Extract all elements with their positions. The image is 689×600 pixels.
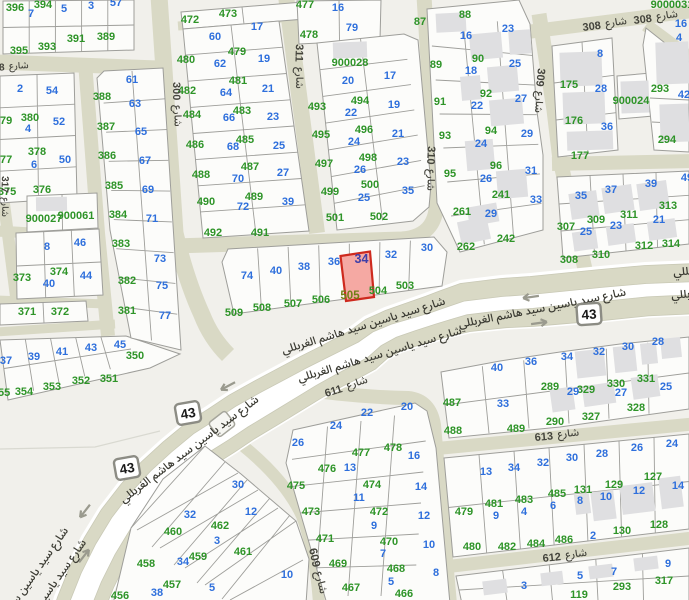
svg-text:25: 25 (580, 226, 592, 238)
svg-text:68: 68 (227, 141, 239, 153)
svg-text:40: 40 (43, 278, 55, 290)
svg-text:393: 393 (38, 41, 56, 53)
svg-text:21: 21 (653, 214, 665, 226)
svg-text:32: 32 (385, 249, 397, 261)
svg-text:45: 45 (114, 339, 126, 351)
svg-text:309: 309 (587, 214, 605, 226)
svg-text:309: 309 (533, 68, 547, 88)
svg-text:30: 30 (566, 452, 578, 464)
svg-text:54: 54 (46, 85, 59, 97)
svg-text:311: 311 (292, 44, 305, 62)
svg-text:4: 4 (521, 506, 528, 518)
svg-text:612: 612 (542, 551, 562, 565)
svg-text:128: 128 (650, 519, 668, 531)
svg-text:613: 613 (534, 430, 553, 444)
svg-text:65: 65 (135, 126, 147, 138)
svg-text:310: 310 (424, 146, 437, 165)
svg-text:473: 473 (219, 8, 237, 20)
svg-text:26: 26 (354, 164, 366, 176)
svg-text:900024: 900024 (613, 95, 651, 107)
svg-text:387: 387 (97, 121, 115, 133)
svg-text:352: 352 (72, 375, 90, 387)
svg-text:5: 5 (61, 3, 67, 15)
svg-text:261: 261 (453, 206, 471, 218)
svg-text:308: 308 (560, 254, 578, 266)
svg-text:294: 294 (658, 134, 677, 146)
svg-text:499: 499 (321, 186, 339, 198)
svg-text:72: 72 (237, 201, 249, 213)
svg-text:497: 497 (315, 158, 333, 170)
svg-text:21: 21 (392, 128, 404, 140)
svg-text:23: 23 (397, 156, 409, 168)
svg-text:23: 23 (502, 23, 514, 35)
svg-text:502: 502 (370, 211, 388, 223)
svg-text:505: 505 (340, 290, 360, 302)
svg-text:485: 485 (548, 488, 566, 500)
svg-text:29: 29 (567, 386, 579, 398)
svg-text:378: 378 (28, 146, 46, 158)
svg-text:382: 382 (118, 275, 136, 287)
svg-text:480: 480 (177, 54, 195, 66)
svg-text:28: 28 (596, 448, 608, 460)
svg-text:308: 308 (582, 20, 602, 34)
svg-text:491: 491 (251, 227, 269, 239)
svg-text:462: 462 (211, 520, 229, 532)
svg-text:9000031: 9000031 (651, 0, 689, 11)
svg-text:44: 44 (80, 270, 93, 282)
svg-text:317: 317 (0, 176, 10, 193)
svg-text:386: 386 (98, 150, 116, 162)
svg-text:177: 177 (571, 150, 589, 162)
svg-text:486: 486 (555, 534, 573, 546)
svg-text:495: 495 (312, 129, 330, 141)
svg-text:508: 508 (253, 302, 271, 314)
svg-text:242: 242 (497, 233, 515, 245)
svg-text:14: 14 (415, 481, 428, 493)
svg-text:16: 16 (408, 450, 420, 462)
svg-text:493: 493 (308, 101, 326, 113)
svg-text:2: 2 (590, 530, 596, 542)
svg-text:129: 129 (605, 479, 623, 491)
svg-text:479: 479 (455, 506, 473, 518)
svg-text:328: 328 (627, 402, 645, 414)
svg-text:6: 6 (550, 500, 556, 512)
svg-text:87: 87 (414, 16, 426, 28)
svg-text:60: 60 (209, 31, 221, 43)
svg-text:11: 11 (353, 492, 365, 504)
svg-text:30: 30 (622, 341, 634, 353)
svg-text:504: 504 (369, 285, 388, 297)
svg-text:14: 14 (672, 480, 685, 492)
svg-text:39: 39 (282, 196, 294, 208)
svg-text:487: 487 (241, 161, 259, 173)
svg-text:7: 7 (611, 566, 617, 578)
svg-text:372: 372 (51, 306, 69, 318)
svg-text:300: 300 (170, 82, 182, 100)
svg-text:481: 481 (229, 75, 247, 87)
svg-text:481: 481 (485, 498, 503, 510)
svg-text:262: 262 (457, 241, 475, 253)
svg-text:57: 57 (110, 0, 122, 9)
svg-text:95: 95 (444, 168, 456, 180)
svg-text:69: 69 (142, 184, 154, 196)
svg-text:377: 377 (0, 154, 12, 166)
svg-text:50: 50 (59, 154, 71, 166)
svg-text:5: 5 (209, 582, 215, 594)
svg-text:10: 10 (423, 539, 435, 551)
svg-text:20: 20 (401, 401, 413, 413)
svg-text:25: 25 (660, 381, 672, 393)
svg-text:3: 3 (88, 0, 94, 12)
svg-text:7: 7 (28, 8, 34, 20)
svg-text:16: 16 (332, 2, 344, 14)
svg-text:22: 22 (345, 107, 357, 119)
svg-text:39: 39 (645, 178, 657, 190)
svg-text:478: 478 (384, 442, 402, 454)
svg-text:74: 74 (241, 270, 254, 282)
svg-text:308: 308 (633, 13, 653, 27)
svg-text:8: 8 (44, 241, 50, 253)
svg-text:34: 34 (508, 462, 521, 474)
svg-text:476: 476 (318, 463, 336, 475)
svg-text:52: 52 (53, 116, 65, 128)
svg-text:503: 503 (396, 280, 414, 292)
svg-text:27: 27 (615, 387, 627, 399)
svg-text:29: 29 (521, 128, 533, 140)
svg-text:63: 63 (129, 98, 141, 110)
svg-text:5: 5 (577, 570, 583, 582)
svg-text:94: 94 (485, 125, 498, 137)
svg-text:79: 79 (346, 22, 358, 34)
svg-text:36: 36 (601, 121, 613, 133)
svg-text:88: 88 (459, 9, 471, 21)
svg-text:500: 500 (361, 179, 379, 191)
svg-text:30: 30 (232, 479, 244, 491)
svg-text:479: 479 (228, 46, 246, 58)
svg-text:75: 75 (156, 280, 168, 292)
svg-text:12: 12 (245, 506, 257, 518)
svg-text:38: 38 (298, 261, 310, 273)
svg-text:3: 3 (521, 580, 527, 592)
svg-text:28: 28 (652, 336, 664, 348)
svg-text:43: 43 (179, 405, 197, 422)
svg-text:21: 21 (262, 83, 274, 95)
svg-text:89: 89 (430, 59, 442, 71)
svg-text:46: 46 (74, 237, 86, 249)
svg-text:472: 472 (181, 14, 199, 26)
svg-text:470: 470 (380, 536, 398, 548)
svg-text:119: 119 (570, 589, 588, 600)
svg-text:466: 466 (395, 588, 413, 600)
svg-text:16: 16 (675, 18, 687, 30)
svg-text:395: 395 (10, 45, 28, 57)
svg-text:40: 40 (491, 362, 503, 374)
svg-text:477: 477 (296, 0, 314, 11)
svg-text:28: 28 (595, 83, 607, 95)
svg-text:457: 457 (163, 579, 181, 591)
svg-text:376: 376 (33, 184, 51, 196)
svg-text:26: 26 (292, 437, 304, 449)
svg-text:31: 31 (525, 165, 537, 177)
svg-text:371: 371 (18, 306, 36, 318)
svg-text:25: 25 (273, 140, 285, 152)
svg-text:461: 461 (234, 546, 252, 558)
svg-text:61: 61 (126, 74, 138, 86)
svg-text:36: 36 (328, 256, 340, 268)
svg-text:317: 317 (655, 575, 673, 587)
svg-text:458: 458 (137, 558, 155, 570)
svg-text:22: 22 (361, 407, 373, 419)
svg-text:484: 484 (527, 538, 546, 550)
svg-text:24: 24 (330, 420, 343, 432)
svg-text:93: 93 (439, 130, 451, 142)
svg-text:18: 18 (465, 65, 477, 77)
svg-text:64: 64 (220, 87, 233, 99)
svg-text:488: 488 (444, 425, 462, 437)
svg-text:62: 62 (214, 58, 226, 70)
svg-text:2: 2 (17, 83, 23, 95)
svg-text:900028: 900028 (332, 57, 369, 69)
svg-text:24: 24 (475, 138, 488, 150)
svg-text:25: 25 (509, 58, 521, 70)
svg-text:70: 70 (232, 173, 244, 185)
svg-text:8: 8 (577, 495, 583, 507)
svg-text:490: 490 (197, 196, 215, 208)
svg-text:388: 388 (93, 91, 111, 103)
svg-text:19: 19 (258, 53, 270, 65)
svg-text:478: 478 (300, 29, 318, 41)
svg-text:10: 10 (281, 569, 293, 581)
svg-text:25: 25 (358, 192, 370, 204)
svg-text:383: 383 (112, 238, 130, 250)
svg-text:23: 23 (610, 220, 622, 232)
svg-text:354: 354 (15, 386, 34, 398)
svg-text:127: 127 (644, 471, 662, 483)
svg-text:353: 353 (43, 381, 61, 393)
svg-text:318: 318 (0, 62, 5, 74)
svg-text:9: 9 (665, 558, 671, 570)
svg-text:9: 9 (371, 520, 377, 532)
svg-text:327: 327 (582, 411, 600, 423)
svg-text:310: 310 (592, 249, 610, 261)
svg-text:507: 507 (284, 298, 302, 310)
svg-text:77: 77 (159, 310, 171, 322)
svg-text:467: 467 (342, 582, 360, 594)
svg-text:73: 73 (154, 253, 166, 265)
svg-text:19: 19 (388, 99, 400, 111)
svg-text:7: 7 (380, 548, 386, 560)
svg-text:23: 23 (267, 111, 279, 123)
svg-text:487: 487 (443, 397, 461, 409)
svg-text:350: 350 (126, 350, 144, 362)
svg-text:373: 373 (13, 272, 31, 284)
svg-text:10: 10 (600, 491, 612, 503)
svg-text:494: 494 (351, 95, 370, 107)
svg-text:289: 289 (541, 381, 559, 393)
svg-text:66: 66 (223, 112, 235, 124)
svg-text:26: 26 (480, 173, 492, 185)
svg-text:396: 396 (6, 2, 24, 14)
svg-text:501: 501 (326, 212, 344, 224)
svg-text:36: 36 (525, 356, 537, 368)
svg-text:506: 506 (312, 294, 330, 306)
svg-text:489: 489 (507, 423, 525, 435)
svg-text:468: 468 (387, 563, 405, 575)
svg-text:12: 12 (418, 510, 430, 522)
svg-text:480: 480 (463, 541, 481, 553)
svg-text:41: 41 (56, 346, 68, 358)
svg-text:43: 43 (85, 342, 97, 354)
svg-text:241: 241 (492, 189, 510, 201)
svg-text:17: 17 (251, 21, 263, 33)
svg-text:329: 329 (577, 384, 595, 396)
svg-text:391: 391 (67, 33, 85, 45)
svg-text:12: 12 (633, 485, 645, 497)
svg-text:314: 314 (662, 238, 681, 250)
svg-text:492: 492 (204, 227, 222, 239)
svg-text:473: 473 (302, 506, 320, 518)
svg-text:34: 34 (561, 351, 574, 363)
svg-text:5: 5 (388, 576, 394, 588)
svg-text:483: 483 (515, 494, 533, 506)
svg-text:293: 293 (651, 83, 669, 95)
svg-text:486: 486 (186, 139, 204, 151)
svg-text:496: 496 (355, 124, 373, 136)
svg-text:33: 33 (530, 194, 542, 206)
svg-text:38: 38 (151, 587, 163, 599)
svg-text:34: 34 (355, 252, 369, 266)
svg-text:67: 67 (139, 155, 151, 167)
svg-text:3: 3 (214, 535, 220, 547)
svg-text:482: 482 (498, 541, 516, 553)
svg-text:469: 469 (329, 558, 347, 570)
svg-text:475: 475 (287, 480, 305, 492)
svg-text:509: 509 (225, 307, 243, 319)
svg-text:91: 91 (434, 96, 446, 108)
svg-text:43: 43 (581, 306, 598, 322)
svg-text:351: 351 (100, 373, 118, 385)
svg-text:13: 13 (344, 462, 356, 474)
svg-text:34: 34 (177, 556, 190, 568)
svg-text:176: 176 (565, 115, 583, 127)
svg-text:43: 43 (118, 460, 136, 477)
svg-text:30: 30 (421, 242, 433, 254)
svg-text:4: 4 (676, 32, 683, 44)
svg-text:389: 389 (97, 31, 115, 43)
svg-text:35: 35 (402, 185, 414, 197)
svg-text:26: 26 (631, 442, 643, 454)
svg-text:24: 24 (348, 136, 361, 148)
svg-text:484: 484 (183, 109, 202, 121)
svg-text:307: 307 (557, 221, 575, 233)
svg-text:130: 130 (613, 525, 631, 537)
svg-text:16: 16 (460, 30, 472, 42)
svg-text:27: 27 (277, 167, 289, 179)
svg-text:331: 331 (637, 373, 655, 385)
svg-text:290: 290 (546, 416, 564, 428)
svg-text:379: 379 (0, 115, 12, 127)
svg-text:483: 483 (233, 105, 251, 117)
svg-text:311: 311 (620, 209, 638, 221)
svg-text:355: 355 (0, 387, 10, 399)
svg-text:381: 381 (118, 305, 136, 317)
svg-text:71: 71 (146, 213, 158, 225)
svg-text:385: 385 (105, 180, 123, 192)
svg-text:312: 312 (635, 240, 653, 252)
svg-text:39: 39 (28, 351, 40, 363)
svg-text:40: 40 (270, 265, 282, 277)
svg-text:13: 13 (480, 466, 492, 478)
svg-text:374: 374 (50, 266, 69, 278)
svg-text:92: 92 (480, 88, 492, 100)
svg-text:394: 394 (34, 0, 53, 11)
svg-text:32: 32 (593, 346, 605, 358)
svg-text:313: 313 (659, 200, 677, 212)
svg-text:459: 459 (189, 551, 207, 563)
svg-text:24: 24 (666, 438, 679, 450)
svg-text:900061: 900061 (58, 210, 95, 222)
svg-text:32: 32 (184, 509, 196, 521)
svg-text:8: 8 (433, 567, 439, 579)
svg-text:384: 384 (109, 209, 128, 221)
svg-text:37: 37 (0, 355, 12, 367)
svg-text:498: 498 (359, 152, 377, 164)
svg-text:29: 29 (485, 208, 497, 220)
svg-text:35: 35 (575, 190, 587, 202)
svg-text:456: 456 (111, 590, 129, 600)
svg-text:6: 6 (31, 159, 37, 171)
svg-text:37: 37 (605, 184, 617, 196)
svg-text:175: 175 (560, 79, 578, 91)
svg-text:90: 90 (472, 53, 484, 65)
svg-text:4: 4 (25, 123, 32, 135)
svg-text:474: 474 (363, 479, 382, 491)
svg-text:460: 460 (164, 526, 182, 538)
svg-text:471: 471 (316, 533, 334, 545)
svg-text:42: 42 (678, 89, 689, 101)
svg-text:20: 20 (342, 75, 354, 87)
svg-text:293: 293 (613, 581, 631, 593)
svg-text:49: 49 (681, 172, 689, 184)
svg-text:17: 17 (384, 70, 396, 82)
svg-text:8: 8 (597, 48, 603, 60)
svg-text:32: 32 (537, 457, 549, 469)
svg-text:33: 33 (497, 398, 509, 410)
svg-text:27: 27 (515, 93, 527, 105)
svg-text:96: 96 (490, 160, 502, 172)
svg-text:472: 472 (370, 506, 388, 518)
svg-text:488: 488 (192, 169, 210, 181)
svg-text:9: 9 (493, 510, 499, 522)
svg-text:477: 477 (352, 447, 370, 459)
svg-text:22: 22 (471, 100, 483, 112)
